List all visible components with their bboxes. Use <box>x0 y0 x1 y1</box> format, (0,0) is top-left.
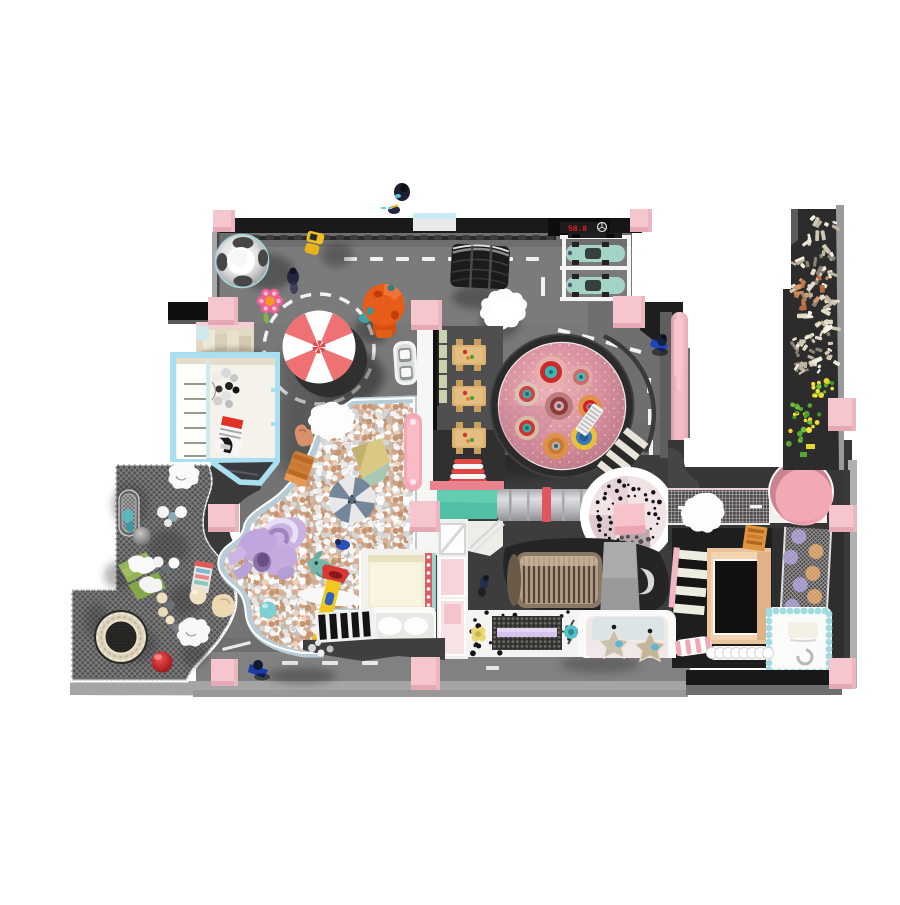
svg-text:58.8: 58.8 <box>568 225 587 234</box>
